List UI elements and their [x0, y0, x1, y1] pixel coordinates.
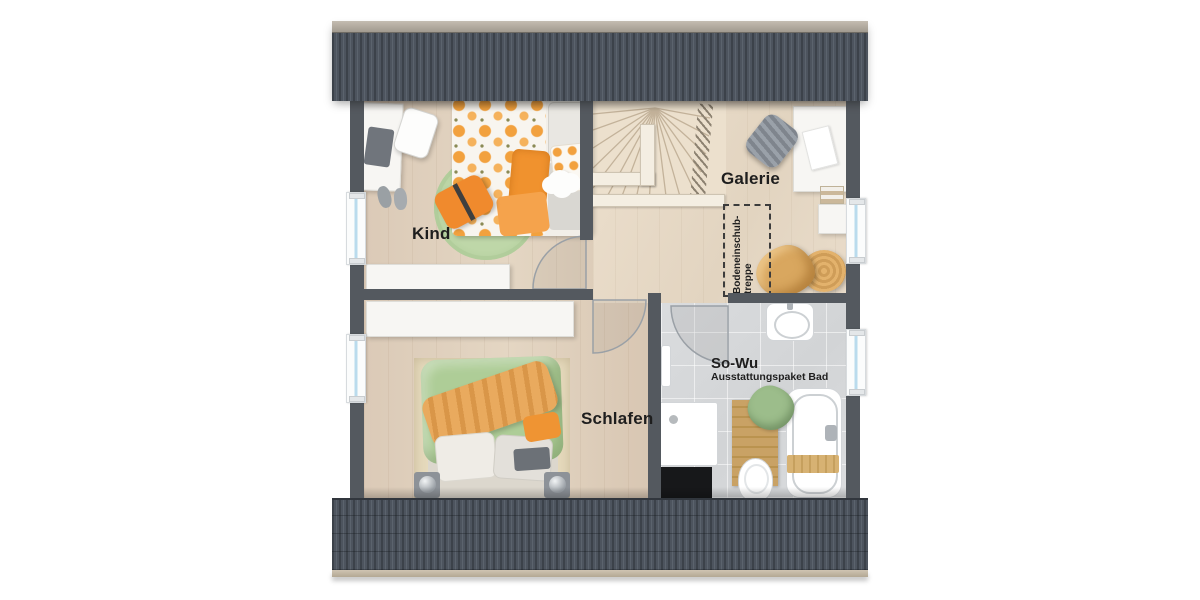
window-sash [349, 335, 365, 341]
room-label-bad-title: So-Wu [711, 355, 758, 372]
room-label-bad-subtitle: Ausstattungspaket Bad [711, 371, 828, 383]
window-sash [849, 389, 865, 395]
window-glass [355, 197, 358, 259]
floor-plan: Bodeneinschub- treppe [0, 0, 1200, 600]
wall-bad-left [648, 293, 661, 498]
window-sash [349, 396, 365, 402]
room-label-galerie: Galerie [721, 169, 780, 189]
attic-hatch-label: Bodeneinschub- treppe [732, 202, 754, 294]
door-arc-kind [533, 236, 586, 289]
roof-corrugation [332, 498, 868, 570]
window-sash [849, 330, 865, 336]
window-kind [346, 192, 366, 265]
window-sash [349, 258, 365, 264]
window-glass [855, 334, 858, 391]
attic-hatch-label-line2: treppe [743, 202, 754, 294]
window-sash [349, 193, 365, 199]
window-schlafen [346, 334, 366, 403]
roof-shadow-bottom [364, 487, 846, 498]
wall-left [350, 88, 364, 498]
roof-corrugation [332, 33, 868, 101]
wall-divider [364, 289, 593, 300]
window-glass [855, 203, 858, 259]
roof-band-bottom [332, 498, 868, 578]
roof-shadow-top [364, 100, 846, 111]
wall-kind-right [580, 100, 593, 240]
window-bad [846, 329, 866, 396]
roof-eave-strip [332, 570, 868, 577]
roof-band-top [332, 21, 868, 100]
roof-ridge-cap [332, 21, 868, 33]
wall-right [846, 88, 860, 498]
door-arc-schlafen [593, 300, 646, 353]
room-label-schlafen: Schlafen [581, 409, 653, 429]
attic-hatch-label-line1: Bodeneinschub- [732, 202, 743, 294]
window-sash [849, 257, 865, 263]
window-glass [355, 339, 358, 398]
room-label-kind: Kind [412, 224, 451, 244]
window-galerie [846, 198, 866, 264]
window-sash [849, 199, 865, 205]
wall-bad-top [728, 293, 846, 303]
